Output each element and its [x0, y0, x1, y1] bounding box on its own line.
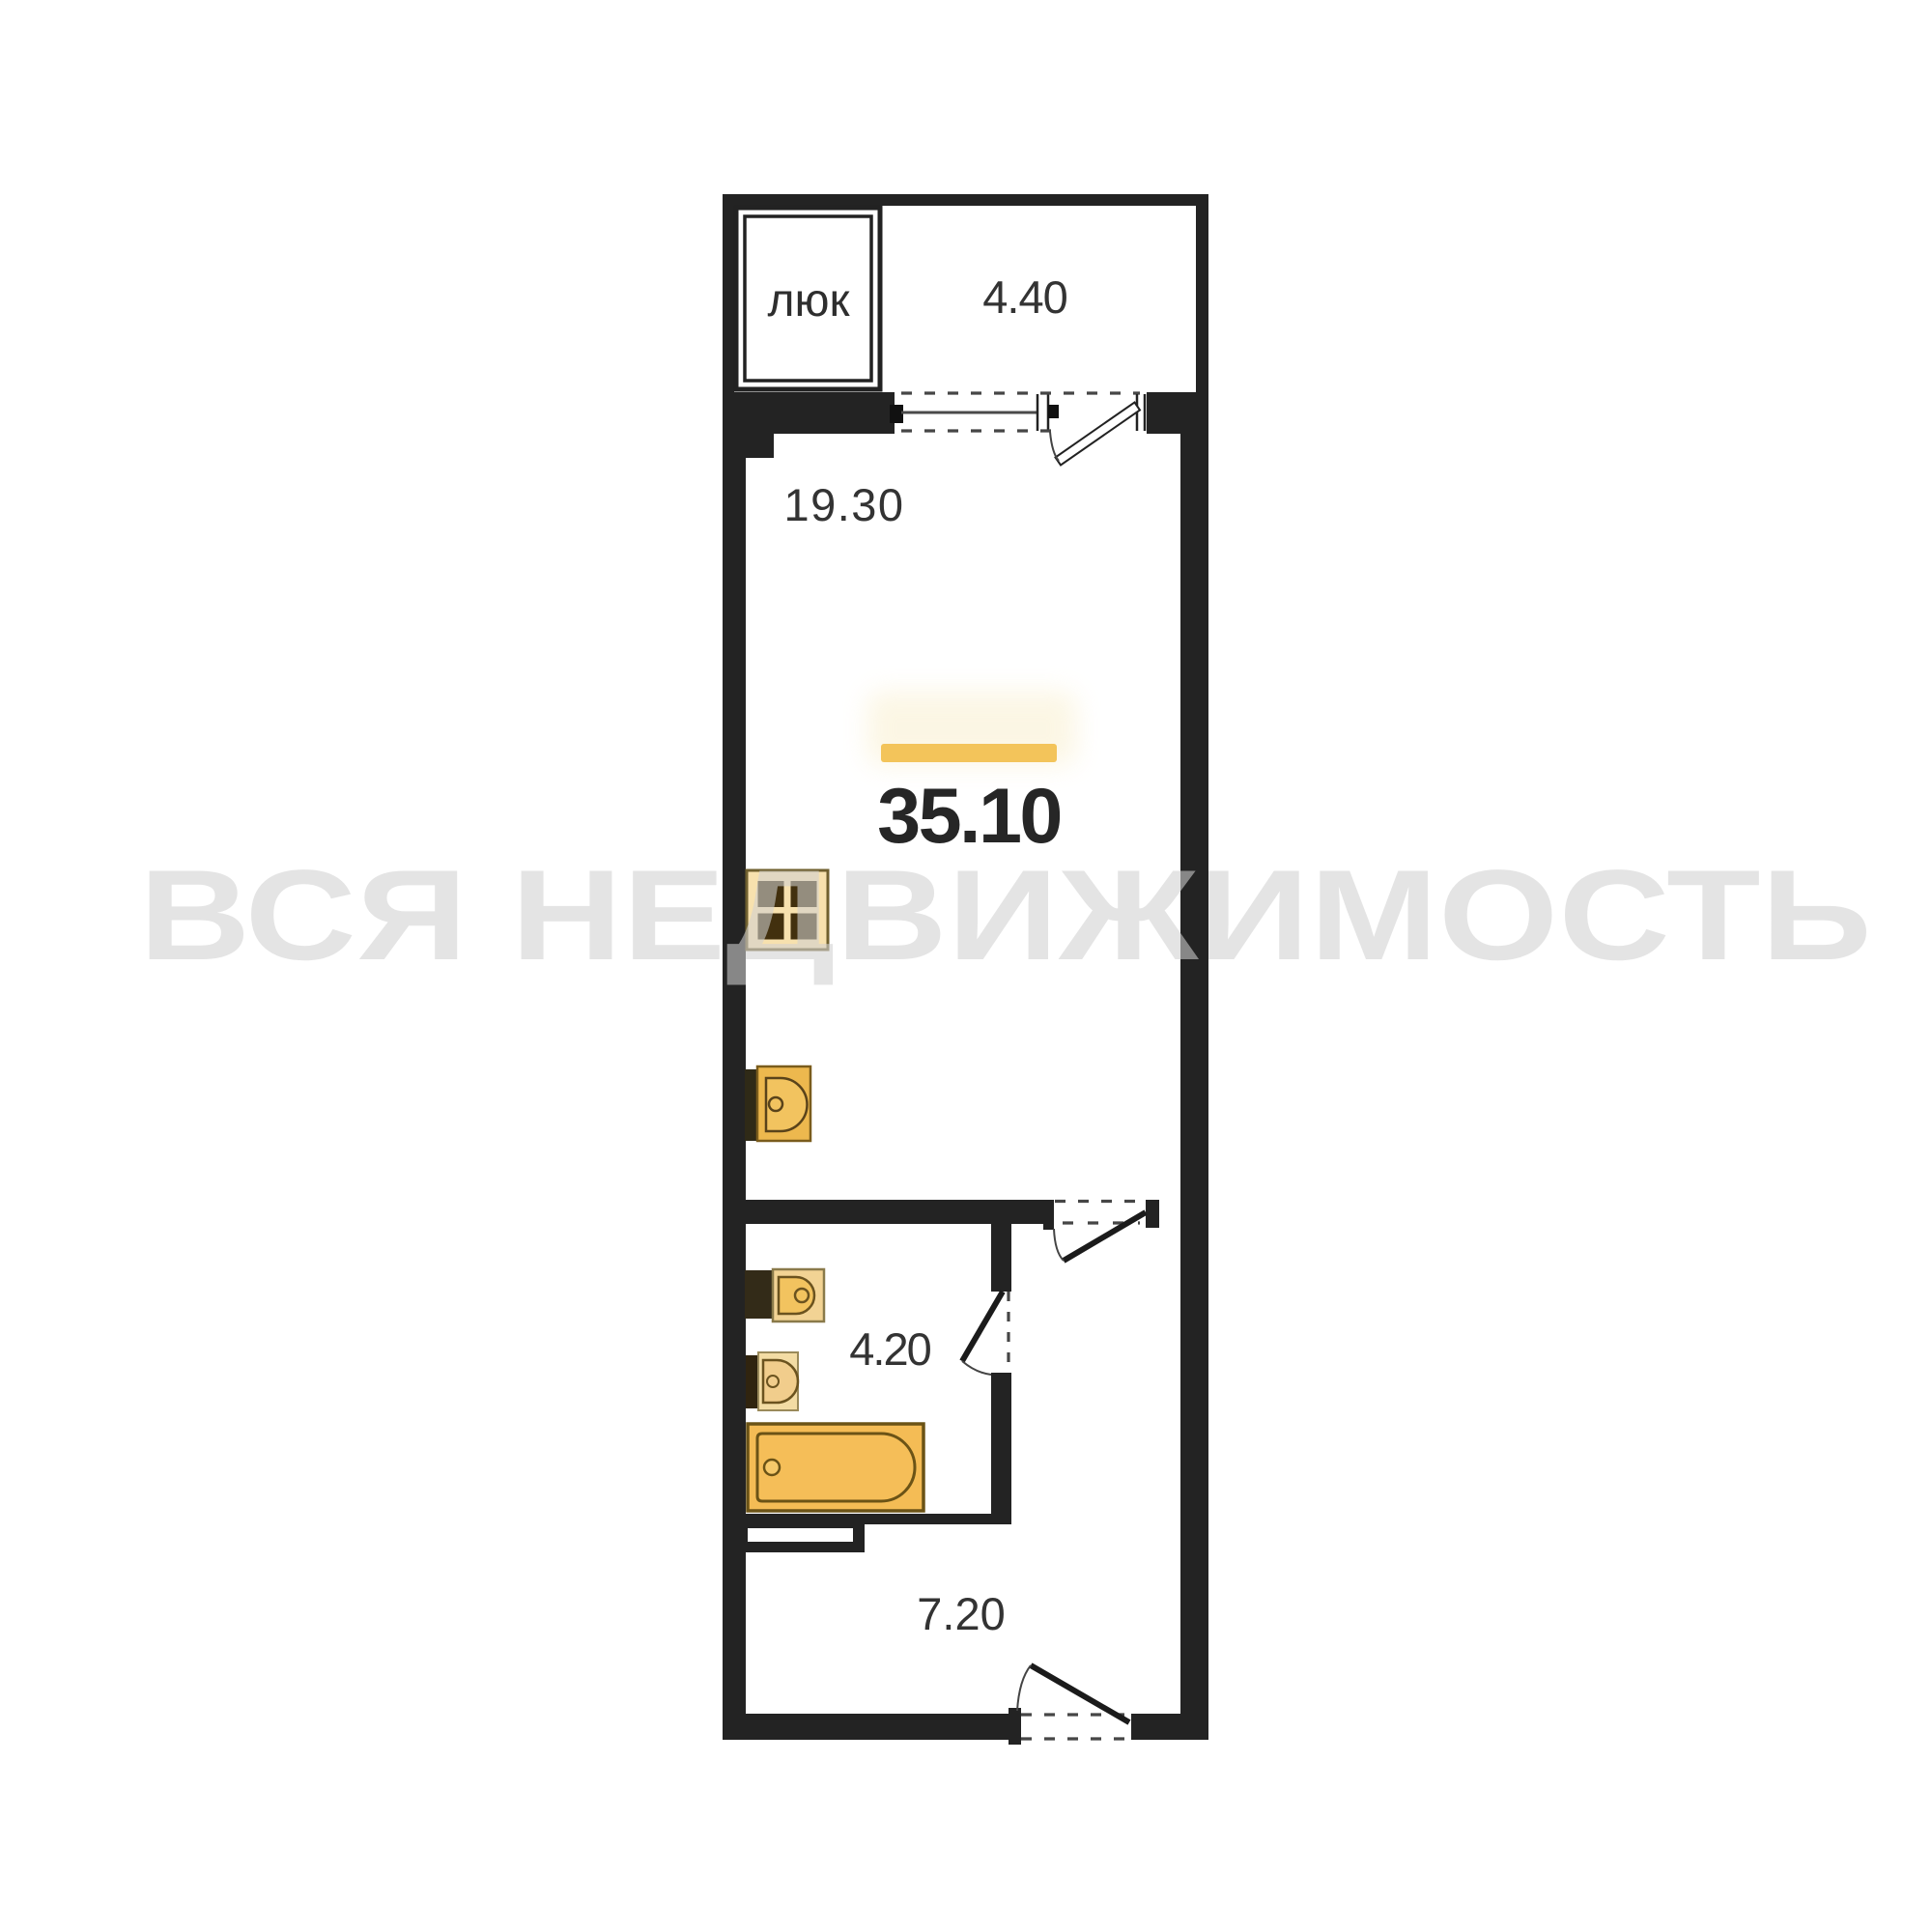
svg-text:4.40: 4.40	[982, 271, 1066, 323]
svg-text:7.20: 7.20	[917, 1588, 1005, 1639]
svg-text:4.20: 4.20	[849, 1323, 930, 1375]
svg-text:люк: люк	[767, 275, 850, 327]
svg-text:ВСЯ НЕДВИЖИМОСТЬ: ВСЯ НЕДВИЖИМОСТЬ	[139, 843, 1872, 986]
svg-text:19.30: 19.30	[783, 479, 904, 530]
